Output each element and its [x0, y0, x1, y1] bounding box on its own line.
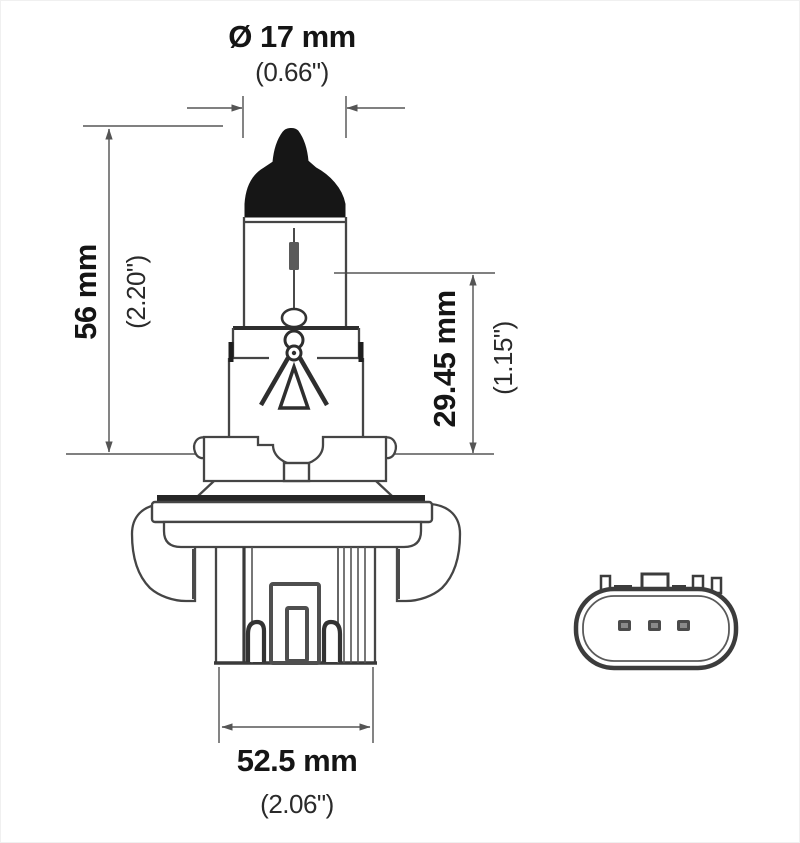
connector-pin-slot: [621, 623, 628, 628]
filament-support: [261, 331, 327, 408]
height-metric-label: 56 mm: [68, 244, 103, 340]
width-imperial-label: (2.06"): [260, 789, 334, 819]
base-flange: [194, 437, 396, 481]
support-triangle: [280, 367, 308, 408]
flange-key-square: [284, 463, 309, 481]
dimension-overall-height: 56 mm (2.20"): [66, 126, 223, 454]
filament-metric-label: 29.45 mm: [427, 290, 462, 427]
latch-right: [324, 622, 340, 662]
mounting-plate-upper: [152, 502, 432, 522]
dimension-base-width: 52.5 mm (2.06"): [219, 667, 373, 819]
filament: [289, 242, 299, 270]
bulb-side-view: [132, 128, 460, 663]
dimension-diameter: Ø 17 mm (0.66"): [187, 19, 405, 138]
filament-assembly: [282, 228, 306, 327]
connector-pins: [618, 620, 690, 631]
filament-loop: [282, 309, 306, 327]
bulb-cap: [245, 128, 345, 217]
connector-pin-slot: [651, 623, 658, 628]
diameter-metric-label: Ø 17 mm: [228, 19, 355, 54]
mounting-plate-lower: [164, 522, 421, 547]
technical-diagram: Ø 17 mm (0.66") 56 mm (2.20") 29.45 mm (…: [1, 1, 800, 843]
dimension-filament-height: 29.45 mm (1.15"): [328, 273, 518, 454]
filament-imperial-label: (1.15"): [488, 321, 518, 395]
diameter-imperial-label: (0.66"): [255, 57, 329, 87]
diagram-canvas: Ø 17 mm (0.66") 56 mm (2.20") 29.45 mm (…: [0, 0, 800, 843]
terminal-pin: [287, 608, 307, 661]
height-imperial-label: (2.20"): [121, 255, 151, 329]
skirt-right: [376, 481, 392, 496]
connector-front-view: [576, 574, 736, 668]
latch-left: [248, 622, 264, 662]
width-metric-label: 52.5 mm: [237, 743, 358, 778]
skirt-left: [198, 481, 214, 496]
connector-pin-slot: [680, 623, 687, 628]
support-bead-pin: [292, 351, 296, 355]
